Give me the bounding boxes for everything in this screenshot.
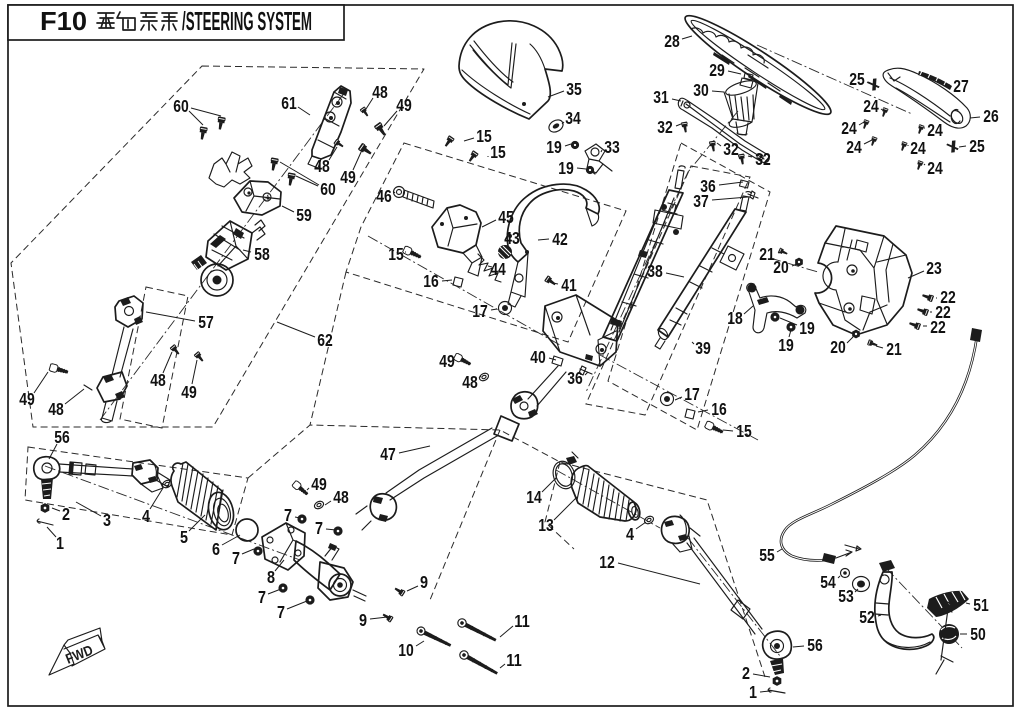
svg-text:28: 28: [664, 31, 680, 51]
svg-text:21: 21: [759, 244, 775, 264]
svg-text:33: 33: [604, 137, 620, 157]
svg-text:38: 38: [647, 261, 663, 281]
svg-text:61: 61: [281, 93, 297, 113]
svg-text:5: 5: [180, 527, 188, 547]
svg-text:42: 42: [552, 229, 568, 249]
svg-text:17: 17: [684, 384, 700, 404]
svg-text:62: 62: [317, 330, 333, 350]
svg-text:37: 37: [693, 191, 709, 211]
svg-text:/STEERING SYSTEM: /STEERING SYSTEM: [182, 6, 312, 36]
svg-text:26: 26: [983, 106, 999, 126]
svg-text:48: 48: [314, 156, 330, 176]
svg-text:56: 56: [807, 635, 823, 655]
svg-text:19: 19: [558, 158, 574, 178]
svg-text:4: 4: [142, 506, 150, 526]
svg-text:10: 10: [398, 640, 414, 660]
svg-text:11: 11: [514, 611, 530, 631]
svg-text:48: 48: [372, 82, 388, 102]
svg-text:2: 2: [62, 504, 70, 524]
svg-text:7: 7: [315, 518, 323, 538]
svg-text:20: 20: [830, 337, 846, 357]
svg-text:50: 50: [970, 624, 986, 644]
svg-text:9: 9: [420, 572, 428, 592]
svg-text:15: 15: [736, 421, 752, 441]
svg-text:56: 56: [54, 427, 70, 447]
svg-text:7: 7: [258, 587, 266, 607]
svg-text:24: 24: [863, 96, 879, 116]
svg-text:48: 48: [48, 399, 64, 419]
svg-text:32: 32: [723, 139, 739, 159]
svg-text:20: 20: [773, 257, 789, 277]
svg-text:4: 4: [626, 524, 634, 544]
svg-text:30: 30: [693, 80, 709, 100]
svg-text:53: 53: [838, 586, 854, 606]
svg-text:24: 24: [927, 158, 943, 178]
svg-text:44: 44: [490, 259, 506, 279]
svg-text:49: 49: [19, 389, 35, 409]
svg-text:23: 23: [926, 258, 942, 278]
svg-text:1: 1: [56, 533, 64, 553]
svg-text:46: 46: [376, 186, 392, 206]
svg-text:18: 18: [727, 308, 743, 328]
svg-text:8: 8: [267, 567, 275, 587]
svg-text:27: 27: [953, 76, 969, 96]
svg-text:54: 54: [820, 572, 836, 592]
svg-text:12: 12: [599, 552, 615, 572]
svg-text:36: 36: [567, 368, 583, 388]
svg-text:39: 39: [695, 338, 711, 358]
svg-text:34: 34: [565, 108, 581, 128]
svg-text:21: 21: [886, 339, 902, 359]
svg-text:43: 43: [504, 228, 520, 248]
svg-text:35: 35: [566, 79, 582, 99]
svg-text:48: 48: [333, 487, 349, 507]
svg-text:24: 24: [846, 137, 862, 157]
svg-text:41: 41: [561, 275, 577, 295]
svg-text:19: 19: [799, 318, 815, 338]
svg-text:60: 60: [320, 179, 336, 199]
svg-text:49: 49: [396, 95, 412, 115]
svg-text:19: 19: [778, 335, 794, 355]
svg-text:6: 6: [212, 539, 220, 559]
svg-text:49: 49: [311, 474, 327, 494]
svg-text:24: 24: [841, 118, 857, 138]
svg-text:47: 47: [380, 444, 396, 464]
svg-text:29: 29: [709, 60, 725, 80]
svg-text:40: 40: [530, 347, 546, 367]
svg-text:11: 11: [506, 650, 522, 670]
svg-text:48: 48: [462, 372, 478, 392]
svg-text:48: 48: [150, 370, 166, 390]
svg-text:57: 57: [198, 312, 214, 332]
svg-text:32: 32: [755, 149, 771, 169]
svg-text:49: 49: [181, 382, 197, 402]
svg-text:2: 2: [742, 663, 750, 683]
svg-text:60: 60: [173, 96, 189, 116]
svg-text:52: 52: [859, 607, 875, 627]
svg-text:49: 49: [340, 167, 356, 187]
svg-text:24: 24: [927, 120, 943, 140]
svg-text:19: 19: [546, 137, 562, 157]
svg-text:25: 25: [849, 69, 865, 89]
svg-text:7: 7: [277, 602, 285, 622]
svg-text:49: 49: [439, 351, 455, 371]
svg-text:45: 45: [498, 207, 514, 227]
svg-text:25: 25: [969, 136, 985, 156]
svg-text:22: 22: [930, 317, 946, 337]
svg-text:15: 15: [490, 142, 506, 162]
svg-text:9: 9: [359, 610, 367, 630]
svg-text:14: 14: [526, 487, 542, 507]
svg-text:16: 16: [711, 399, 727, 419]
svg-text:13: 13: [538, 515, 554, 535]
svg-text:31: 31: [653, 87, 669, 107]
svg-text:59: 59: [296, 205, 312, 225]
svg-text:15: 15: [388, 244, 404, 264]
svg-text:17: 17: [472, 301, 488, 321]
svg-text:51: 51: [973, 595, 989, 615]
svg-text:1: 1: [749, 682, 757, 702]
svg-text:24: 24: [910, 138, 926, 158]
svg-text:55: 55: [759, 545, 775, 565]
svg-text:7: 7: [284, 505, 292, 525]
svg-text:32: 32: [657, 117, 673, 137]
svg-text:7: 7: [232, 548, 240, 568]
svg-text:58: 58: [254, 244, 270, 264]
svg-text:F10: F10: [40, 6, 87, 36]
svg-text:16: 16: [423, 271, 439, 291]
svg-text:3: 3: [103, 510, 111, 530]
